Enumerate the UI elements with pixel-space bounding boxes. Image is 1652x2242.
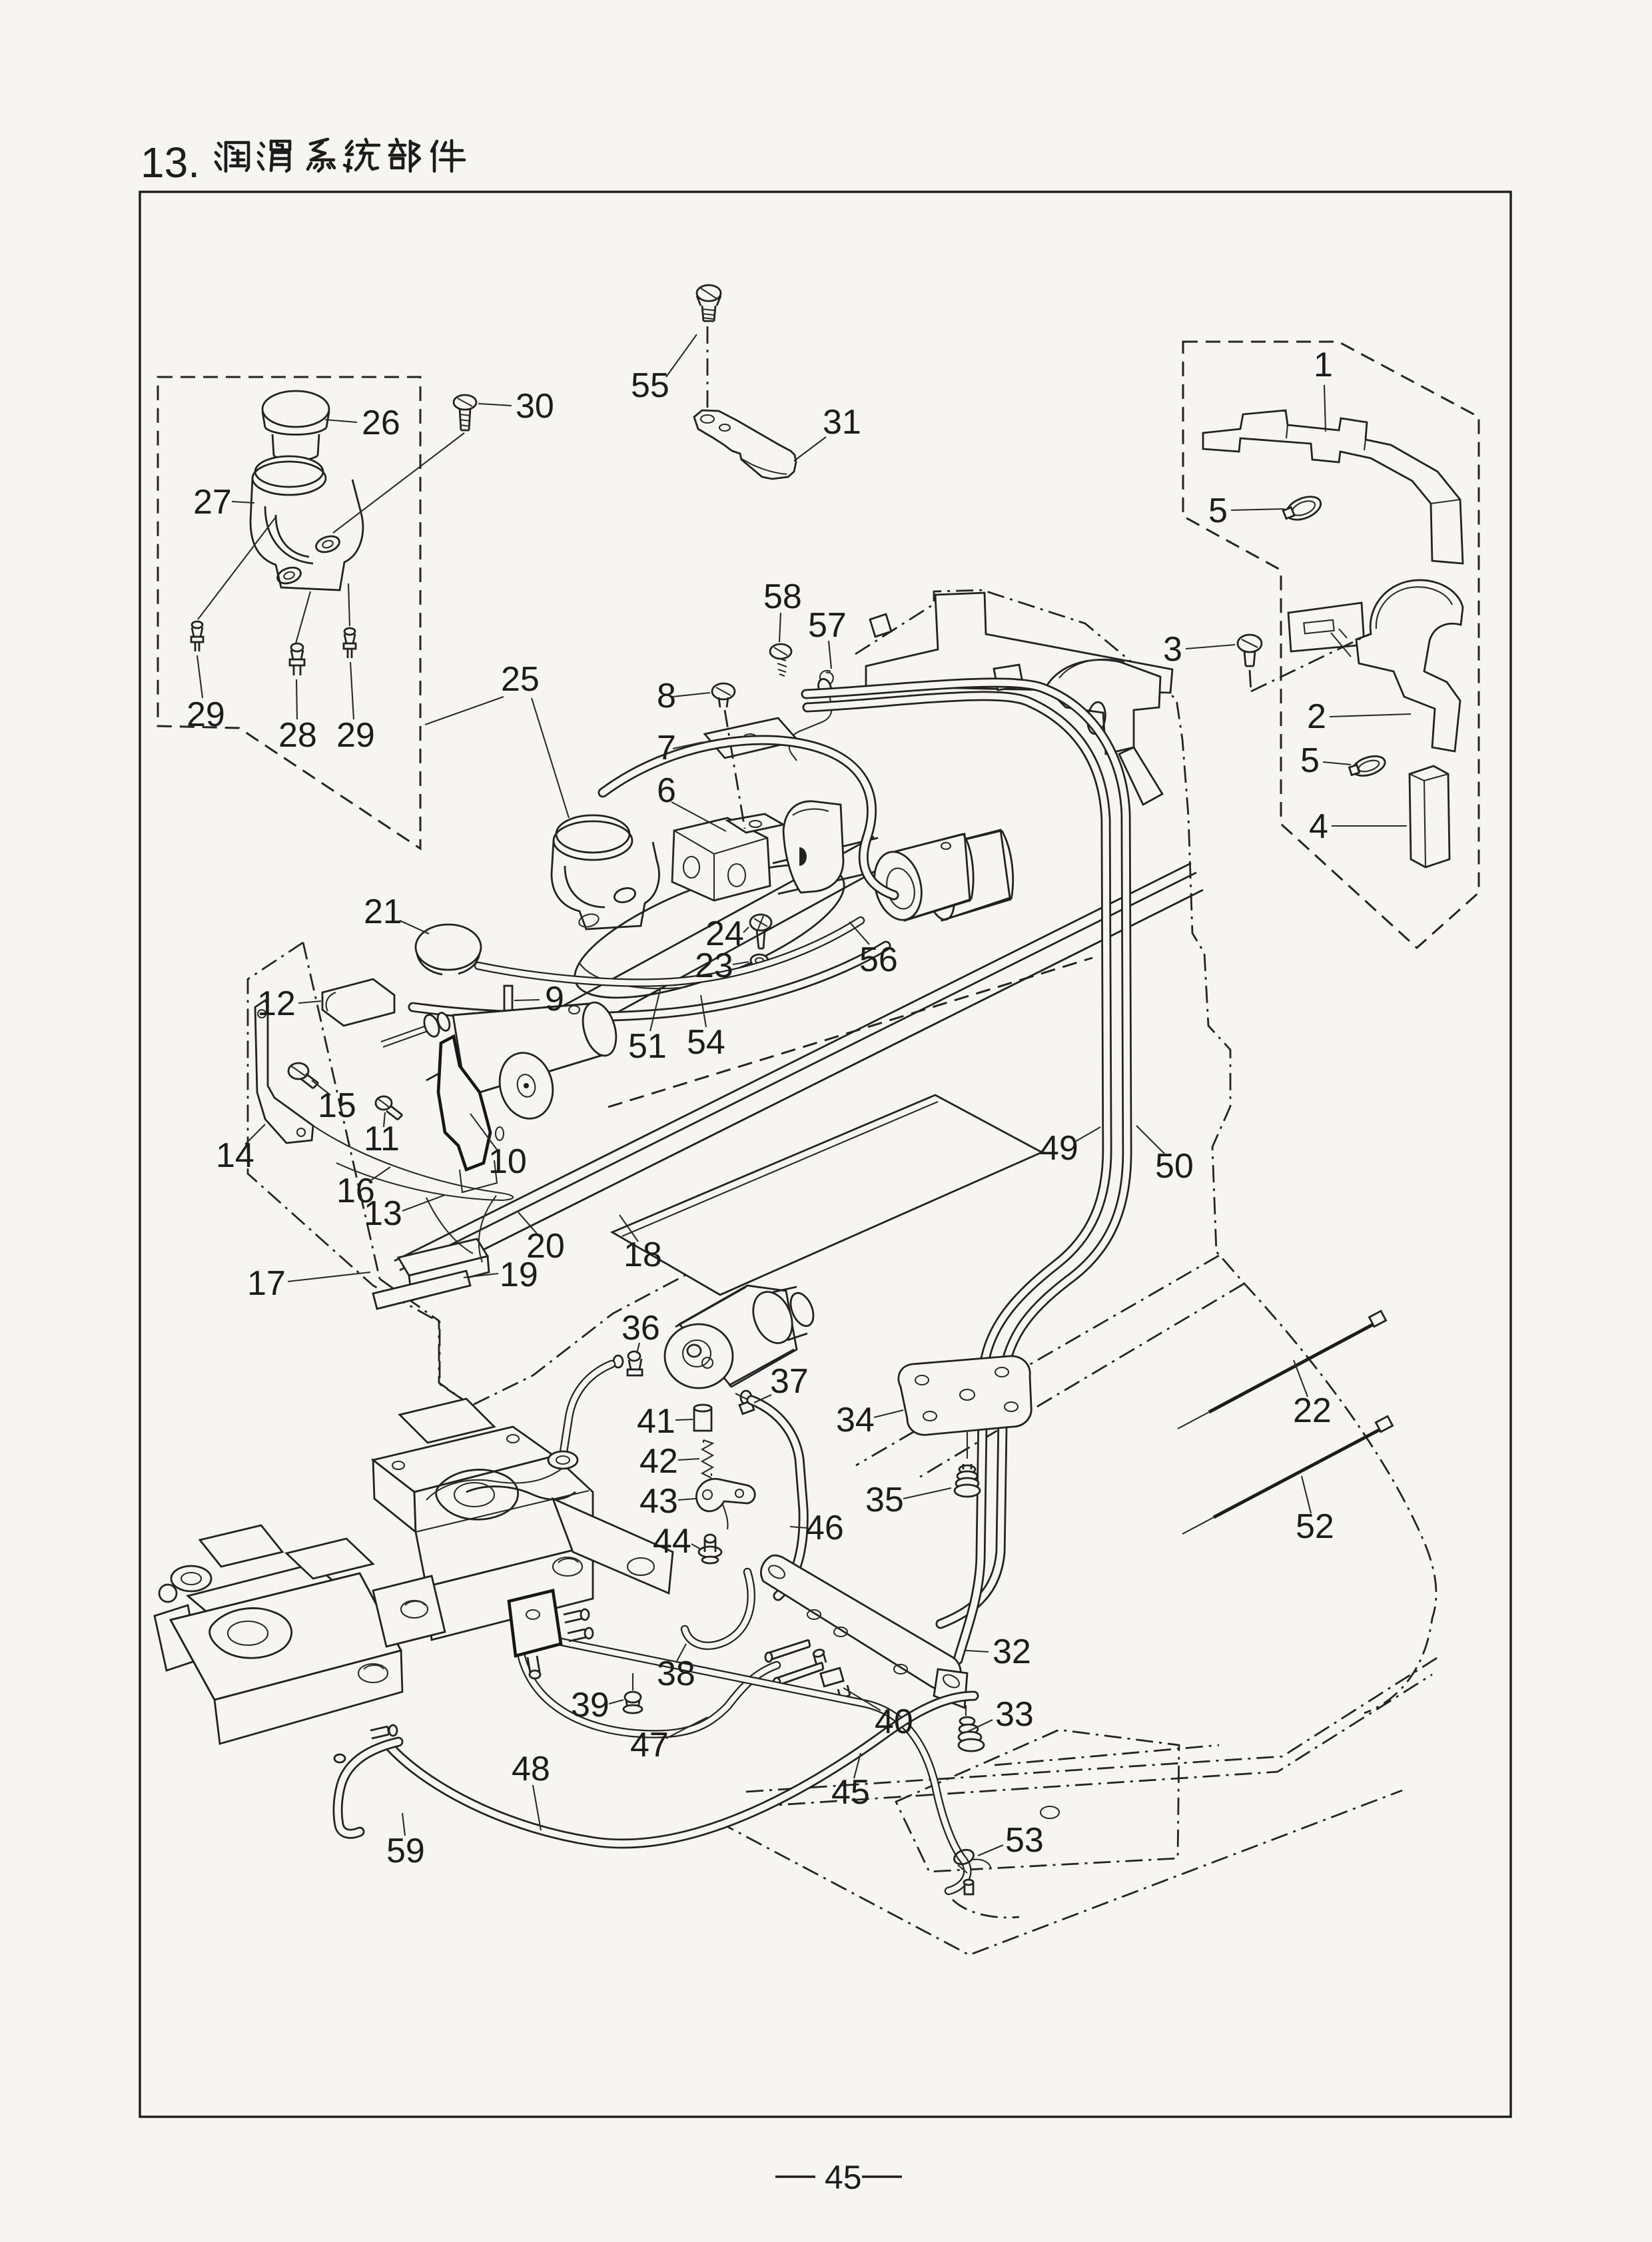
svg-text:35: 35 [865,1481,904,1519]
svg-text:49: 49 [1040,1129,1078,1168]
svg-text:45: 45 [831,1773,870,1812]
svg-text:52: 52 [1296,1507,1334,1546]
svg-text:43: 43 [639,1482,678,1521]
svg-text:5: 5 [1208,492,1228,530]
svg-text:12: 12 [257,984,296,1023]
svg-text:9: 9 [545,980,564,1018]
svg-text:10: 10 [488,1142,527,1181]
svg-text:31: 31 [823,403,861,442]
svg-text:28: 28 [278,716,317,755]
svg-text:59: 59 [386,1832,425,1870]
svg-text:46: 46 [805,1509,844,1547]
svg-text:17: 17 [247,1264,286,1303]
svg-text:34: 34 [836,1401,875,1439]
svg-text:29: 29 [336,716,375,755]
svg-text:25: 25 [501,660,540,699]
svg-text:6: 6 [657,771,676,810]
svg-text:50: 50 [1155,1147,1194,1186]
svg-text:22: 22 [1293,1391,1332,1430]
svg-text:13.: 13. [141,139,200,187]
svg-text:38: 38 [657,1655,695,1693]
svg-text:29: 29 [187,695,225,734]
svg-text:27: 27 [193,483,232,522]
svg-text:47: 47 [630,1726,669,1764]
svg-text:58: 58 [763,577,802,616]
svg-text:20: 20 [526,1227,565,1266]
svg-text:40: 40 [875,1702,913,1741]
svg-text:33: 33 [995,1695,1034,1734]
svg-text:30: 30 [516,387,554,426]
svg-text:36: 36 [621,1309,660,1347]
svg-text:53: 53 [1005,1821,1044,1860]
svg-text:45: 45 [825,2159,862,2196]
svg-text:37: 37 [770,1362,809,1401]
svg-text:21: 21 [364,893,402,931]
svg-text:2: 2 [1307,697,1326,736]
svg-text:56: 56 [859,940,898,979]
svg-text:54: 54 [687,1023,725,1062]
svg-text:14: 14 [216,1136,254,1175]
svg-text:55: 55 [631,366,669,405]
svg-text:51: 51 [628,1027,667,1066]
svg-text:39: 39 [571,1686,610,1724]
svg-text:15: 15 [318,1086,356,1125]
svg-text:16: 16 [336,1172,375,1210]
svg-text:3: 3 [1163,630,1182,669]
svg-text:4: 4 [1309,807,1328,846]
svg-text:41: 41 [637,1402,675,1441]
svg-text:5: 5 [1300,741,1320,780]
svg-text:1: 1 [1314,346,1333,384]
svg-text:24: 24 [705,915,744,953]
svg-text:44: 44 [653,1522,691,1561]
svg-text:48: 48 [512,1750,550,1788]
svg-text:11: 11 [364,1120,400,1158]
svg-text:57: 57 [808,606,847,645]
svg-text:18: 18 [623,1236,662,1274]
svg-text:26: 26 [362,404,400,442]
svg-text:32: 32 [993,1633,1031,1671]
svg-text:42: 42 [639,1442,678,1481]
